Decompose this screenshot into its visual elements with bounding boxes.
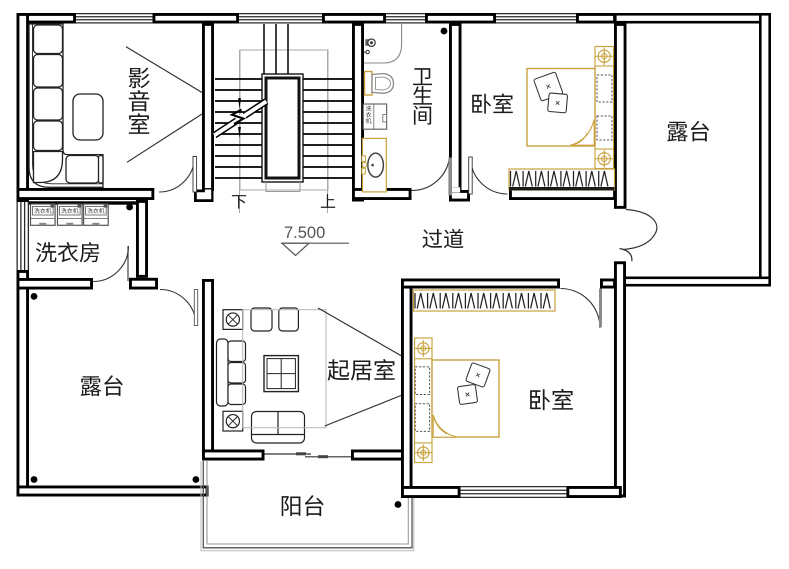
svg-text:7.500: 7.500 bbox=[284, 224, 325, 242]
